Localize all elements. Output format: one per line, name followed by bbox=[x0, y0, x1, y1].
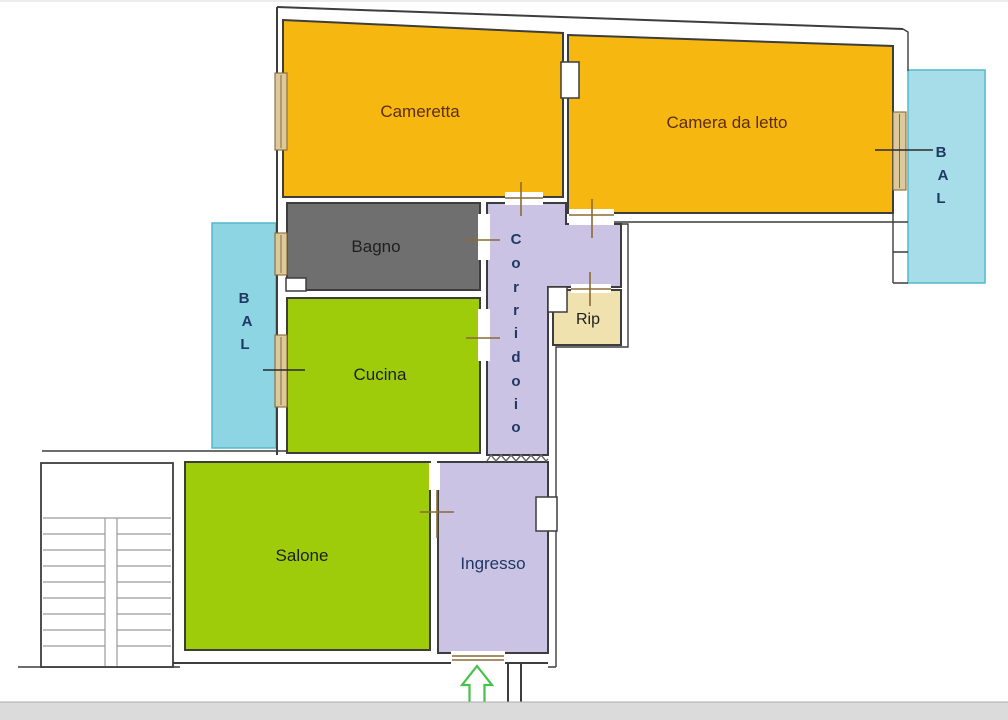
corridoio-letter: o bbox=[511, 419, 520, 436]
label-salone: Salone bbox=[276, 546, 329, 565]
stairwell-outline bbox=[41, 463, 173, 667]
label-ingresso: Ingresso bbox=[460, 554, 525, 573]
corridoio-letter: o bbox=[511, 373, 520, 390]
opening-bagno-door bbox=[478, 214, 490, 260]
bal-right-letter: A bbox=[938, 167, 949, 184]
bal-right-letter: L bbox=[936, 190, 945, 207]
opening-salone-door bbox=[429, 463, 440, 490]
label-rip: Rip bbox=[576, 311, 600, 328]
rip-corner-notch bbox=[548, 287, 567, 312]
opening-cucina-door bbox=[478, 309, 490, 361]
corridoio-letter: C bbox=[511, 231, 522, 248]
corridoio-letter: i bbox=[514, 325, 518, 342]
outer-wall-topright-corner bbox=[903, 29, 908, 71]
label-camera-da-letto: Camera da letto bbox=[667, 113, 788, 132]
bal-left-letter: A bbox=[242, 313, 253, 330]
corridoio-letter: r bbox=[513, 279, 519, 296]
pillar-between-bedrooms bbox=[561, 62, 579, 98]
bal-right-letter: B bbox=[936, 144, 947, 161]
floor-plan: Cameretta Camera da letto Bagno Cucina S… bbox=[0, 0, 1008, 720]
footer-strip bbox=[0, 702, 1008, 720]
opening-entry-door bbox=[451, 651, 505, 664]
label-bagno: Bagno bbox=[351, 237, 400, 256]
bal-left-letter: B bbox=[239, 290, 250, 307]
outer-wall-right-lower bbox=[893, 214, 908, 283]
bottom-gray-bar bbox=[0, 702, 1008, 720]
ingresso-right-opening bbox=[536, 497, 557, 531]
stairwell bbox=[41, 463, 173, 667]
bal-left-letter: L bbox=[240, 336, 249, 353]
bagno-corner-notch bbox=[286, 278, 306, 291]
corridoio-letter: d bbox=[511, 349, 520, 366]
floor-plan-canvas: Cameretta Camera da letto Bagno Cucina S… bbox=[0, 0, 1008, 720]
corridoio-letter: r bbox=[513, 302, 519, 319]
wall-stubs-below-entry bbox=[508, 663, 521, 703]
corridoio-letter: o bbox=[511, 255, 520, 272]
label-cameretta: Cameretta bbox=[380, 102, 460, 121]
corridoio-letter: i bbox=[514, 396, 518, 413]
label-cucina: Cucina bbox=[354, 365, 407, 384]
